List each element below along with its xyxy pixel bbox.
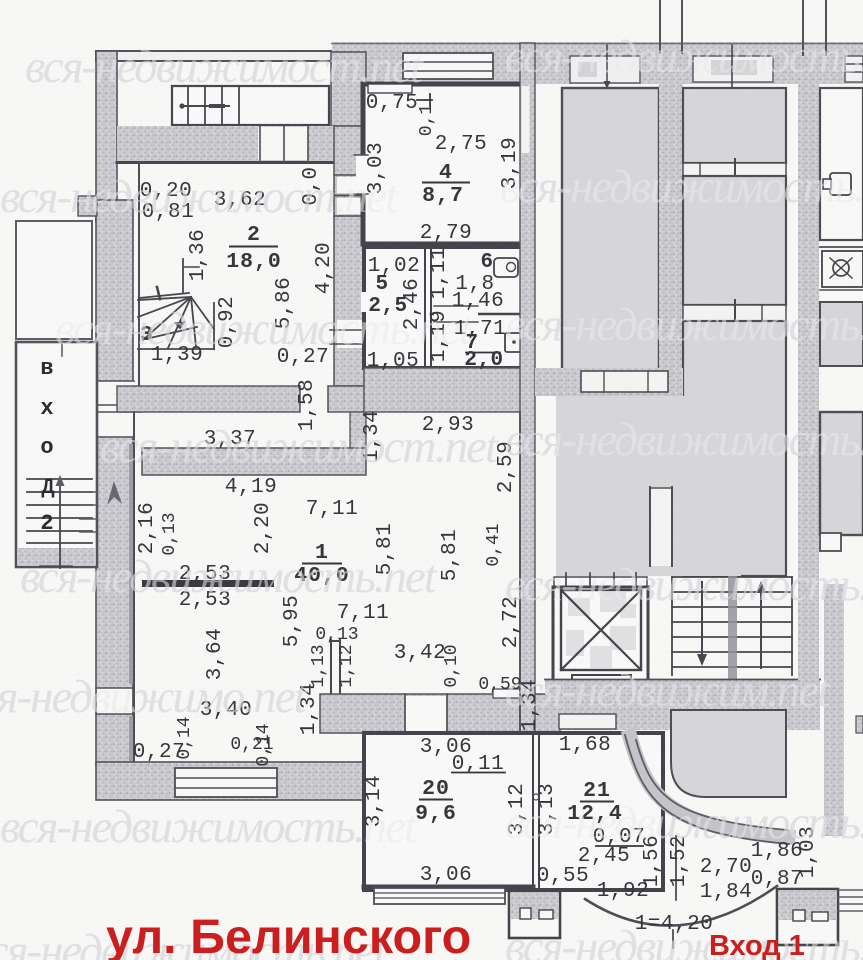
svg-text:2: 2 — [40, 511, 53, 536]
svg-text:Вход 1: Вход 1 — [709, 930, 805, 960]
svg-text:Д: Д — [41, 475, 54, 500]
svg-text:в: в — [40, 356, 53, 381]
svg-text:о: о — [40, 435, 53, 460]
svg-text:ул. Белинского: ул. Белинского — [106, 910, 471, 960]
svg-text:х: х — [40, 396, 53, 421]
